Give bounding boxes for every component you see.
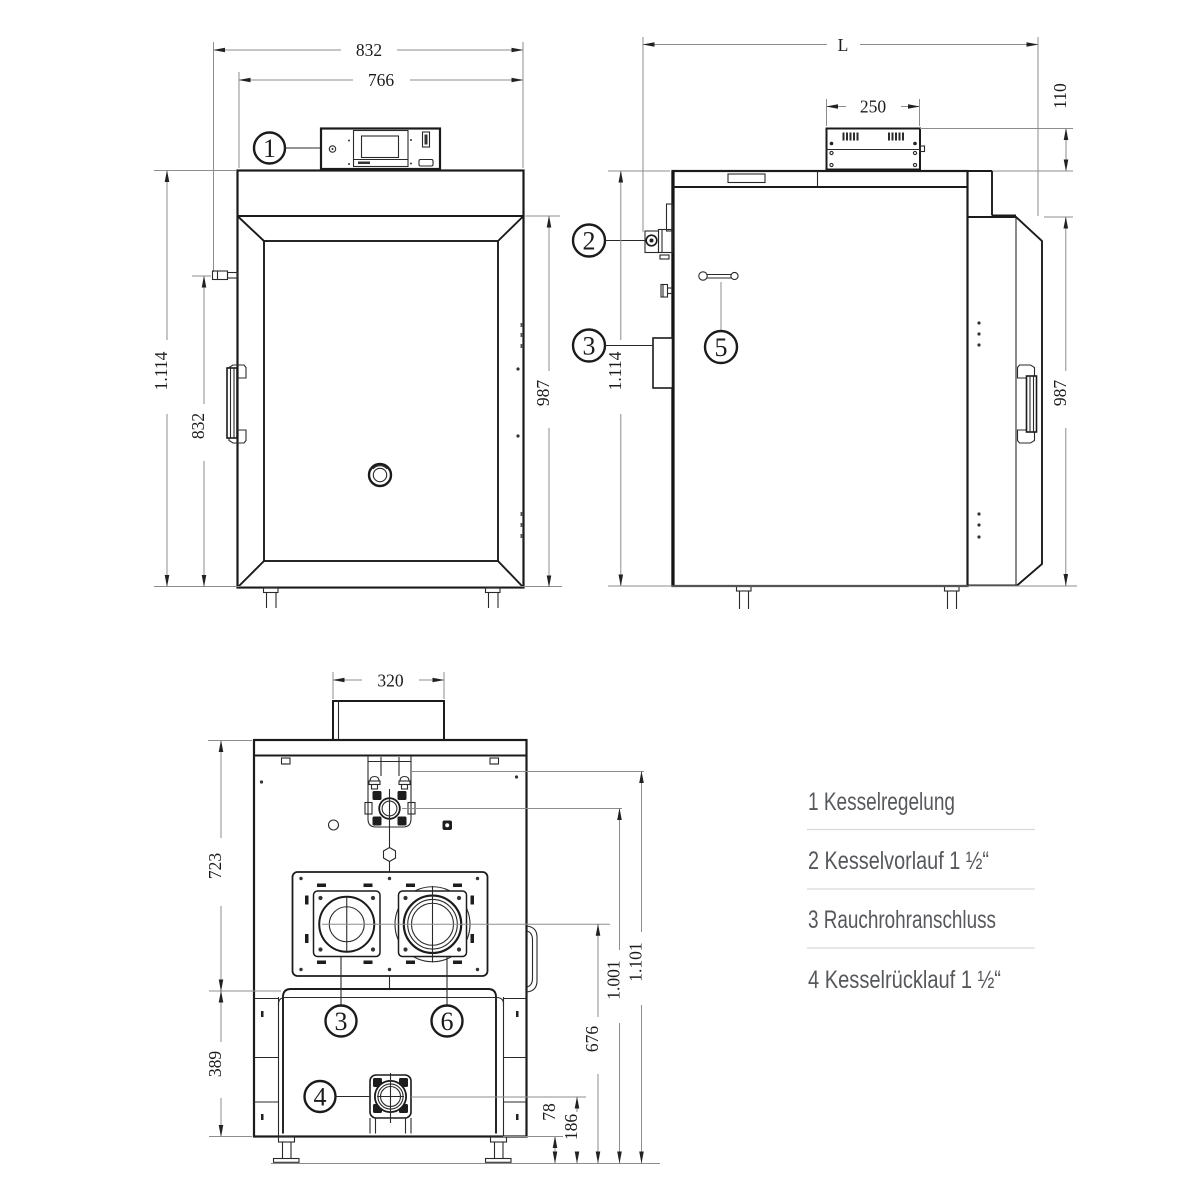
svg-text:766: 766 xyxy=(368,70,395,90)
svg-text:186: 186 xyxy=(561,1114,581,1141)
svg-text:110: 110 xyxy=(1050,83,1070,109)
svg-text:L: L xyxy=(838,35,849,55)
svg-text:1.101: 1.101 xyxy=(626,942,646,981)
svg-text:987: 987 xyxy=(533,380,553,407)
svg-text:3: 3 xyxy=(583,332,596,361)
svg-text:6: 6 xyxy=(441,1007,454,1036)
svg-text:1.114: 1.114 xyxy=(605,351,625,390)
svg-text:389: 389 xyxy=(205,1051,225,1078)
svg-text:78: 78 xyxy=(539,1103,559,1121)
svg-text:5: 5 xyxy=(715,333,728,362)
svg-text:832: 832 xyxy=(356,40,382,60)
svg-text:2 Kesselvorlauf 1 ½“: 2 Kesselvorlauf 1 ½“ xyxy=(808,847,989,875)
svg-text:2: 2 xyxy=(583,227,596,256)
svg-text:832: 832 xyxy=(188,413,208,439)
svg-text:1.001: 1.001 xyxy=(604,960,624,999)
svg-text:1 Kesselregelung: 1 Kesselregelung xyxy=(808,788,955,816)
svg-text:676: 676 xyxy=(582,1026,602,1053)
svg-text:1.114: 1.114 xyxy=(151,351,171,390)
svg-text:320: 320 xyxy=(377,671,404,691)
svg-text:3: 3 xyxy=(335,1007,348,1036)
svg-text:723: 723 xyxy=(205,853,225,880)
svg-text:1: 1 xyxy=(263,134,276,163)
svg-text:987: 987 xyxy=(1050,380,1070,407)
svg-text:4: 4 xyxy=(314,1083,327,1112)
svg-text:3 Rauchrohranschluss: 3 Rauchrohranschluss xyxy=(808,906,996,934)
svg-text:4 Kesselrücklauf 1 ½“: 4 Kesselrücklauf 1 ½“ xyxy=(808,966,1001,994)
svg-text:250: 250 xyxy=(860,97,887,117)
